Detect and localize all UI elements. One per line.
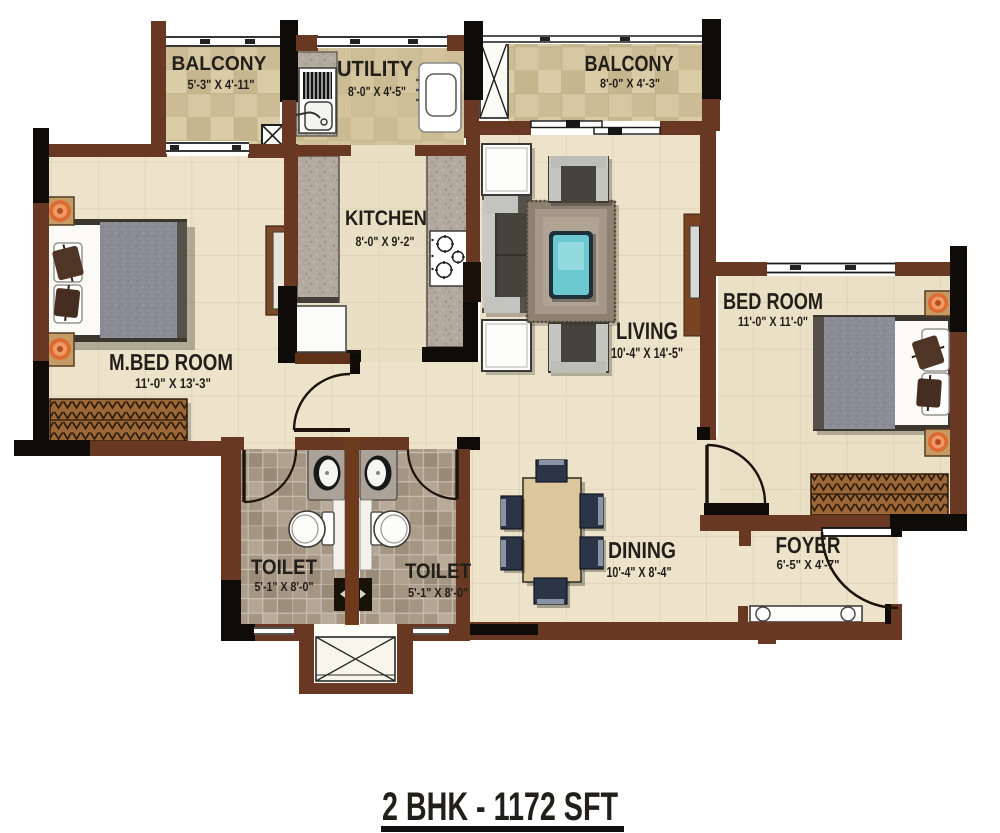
svg-text:LIVING: LIVING bbox=[616, 318, 678, 345]
svg-text:M.BED ROOM: M.BED ROOM bbox=[109, 349, 233, 375]
svg-text:TOILET: TOILET bbox=[405, 560, 471, 583]
svg-text:5'-3" X 4'-11": 5'-3" X 4'-11" bbox=[188, 77, 255, 92]
svg-text:FOYER: FOYER bbox=[776, 532, 841, 558]
svg-text:11'-0" X 13'-3": 11'-0" X 13'-3" bbox=[135, 375, 211, 391]
svg-text:5'-1" X 8'-0": 5'-1" X 8'-0" bbox=[408, 585, 468, 600]
svg-text:8'-0" X 4'-3": 8'-0" X 4'-3" bbox=[600, 77, 660, 91]
svg-text:KITCHEN: KITCHEN bbox=[345, 207, 427, 230]
svg-text:BALCONY: BALCONY bbox=[585, 51, 674, 76]
svg-text:8'-0" X 4'-5": 8'-0" X 4'-5" bbox=[348, 84, 406, 99]
svg-text:8'-0" X 9'-2": 8'-0" X 9'-2" bbox=[356, 234, 415, 249]
svg-text:10'-4" X 8'-4": 10'-4" X 8'-4" bbox=[607, 565, 672, 581]
svg-text:BED ROOM: BED ROOM bbox=[723, 288, 823, 314]
svg-text:5'-1" X 8'-0": 5'-1" X 8'-0" bbox=[255, 579, 314, 594]
svg-text:10'-4" X 14'-5": 10'-4" X 14'-5" bbox=[611, 345, 683, 362]
svg-text:TOILET: TOILET bbox=[251, 556, 317, 579]
svg-text:UTILITY: UTILITY bbox=[337, 56, 413, 81]
svg-text:11'-0" X 11'-0": 11'-0" X 11'-0" bbox=[738, 314, 808, 329]
svg-text:BALCONY: BALCONY bbox=[172, 53, 268, 75]
svg-text:6'-5" X 4'-7": 6'-5" X 4'-7" bbox=[777, 557, 840, 572]
svg-text:2 BHK - 1172 SFT: 2 BHK - 1172 SFT bbox=[382, 785, 618, 829]
svg-text:DINING: DINING bbox=[608, 537, 676, 563]
